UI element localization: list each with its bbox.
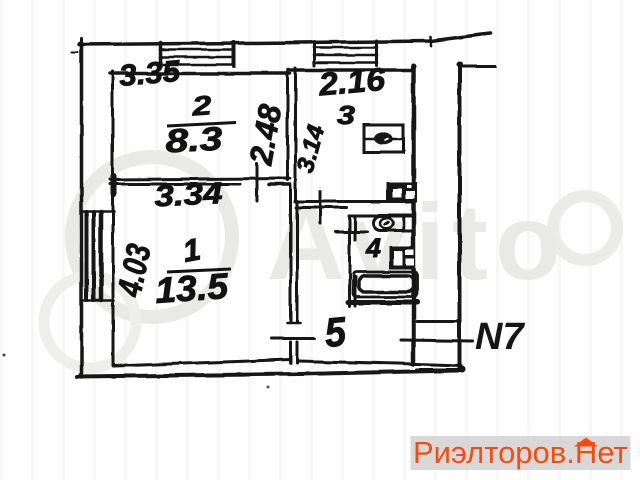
svg-text:1: 1 (180, 231, 203, 268)
svg-text:2.16: 2.16 (316, 61, 386, 103)
svg-text:5: 5 (323, 308, 349, 356)
svg-text:4: 4 (365, 233, 381, 263)
svg-text:2.48: 2.48 (242, 102, 288, 168)
svg-text:3: 3 (337, 100, 356, 130)
svg-text:2: 2 (190, 90, 212, 121)
svg-text:4.03: 4.03 (110, 241, 158, 301)
svg-text:8.3: 8.3 (164, 120, 223, 160)
svg-text:3.34: 3.34 (154, 177, 224, 214)
svg-text:3.35: 3.35 (118, 55, 183, 93)
svg-text:3.14: 3.14 (292, 122, 331, 175)
svg-text:N7: N7 (475, 316, 525, 358)
svg-text:13.5: 13.5 (154, 265, 231, 311)
svg-text:Риэлторов.Нет: Риэлторов.Нет (413, 435, 628, 470)
